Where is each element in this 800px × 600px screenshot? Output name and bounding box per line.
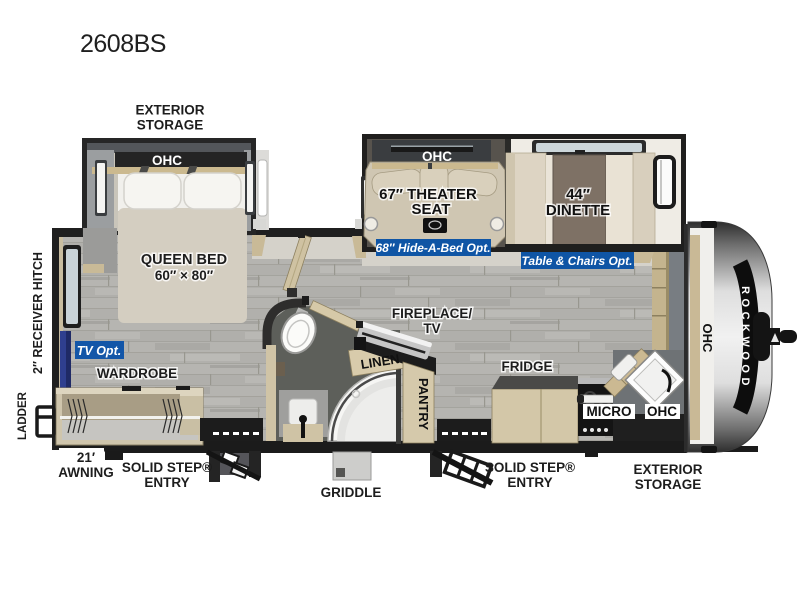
svg-text:ENTRY: ENTRY bbox=[507, 475, 552, 490]
svg-text:DINETTE: DINETTE bbox=[546, 202, 610, 219]
svg-text:EXTERIOR: EXTERIOR bbox=[135, 103, 204, 118]
svg-text:OHC: OHC bbox=[700, 324, 715, 354]
svg-text:60″ × 80″: 60″ × 80″ bbox=[155, 268, 214, 283]
svg-text:Table & Chairs Opt.: Table & Chairs Opt. bbox=[522, 254, 633, 268]
svg-text:2608BS: 2608BS bbox=[80, 30, 166, 58]
svg-text:EXTERIOR: EXTERIOR bbox=[633, 462, 702, 477]
svg-text:ROCKWOOD: ROCKWOOD bbox=[739, 286, 751, 390]
svg-text:TV: TV bbox=[423, 321, 440, 336]
svg-text:PANTRY: PANTRY bbox=[416, 378, 431, 430]
svg-text:68″ Hide-A-Bed Opt.: 68″ Hide-A-Bed Opt. bbox=[375, 241, 490, 255]
svg-text:AWNING: AWNING bbox=[58, 465, 114, 480]
svg-text:GRIDDLE: GRIDDLE bbox=[321, 485, 382, 500]
svg-text:21′: 21′ bbox=[77, 450, 95, 465]
svg-text:ENTRY: ENTRY bbox=[144, 475, 189, 490]
svg-text:OHC: OHC bbox=[152, 153, 182, 168]
svg-text:WARDROBE: WARDROBE bbox=[97, 366, 177, 381]
svg-text:2″ RECEIVER HITCH: 2″ RECEIVER HITCH bbox=[31, 252, 45, 374]
svg-text:STORAGE: STORAGE bbox=[635, 477, 702, 492]
svg-text:STORAGE: STORAGE bbox=[137, 118, 204, 133]
svg-text:FIREPLACE/: FIREPLACE/ bbox=[392, 306, 473, 321]
svg-text:44″: 44″ bbox=[566, 186, 590, 203]
svg-text:FRIDGE: FRIDGE bbox=[501, 359, 552, 374]
svg-text:SOLID STEP®: SOLID STEP® bbox=[122, 460, 212, 475]
svg-text:QUEEN BED: QUEEN BED bbox=[141, 252, 227, 268]
svg-text:LADDER: LADDER bbox=[17, 391, 29, 440]
svg-text:MICRO: MICRO bbox=[587, 404, 632, 419]
svg-text:TV Opt.: TV Opt. bbox=[77, 344, 121, 358]
svg-text:SOLID STEP®: SOLID STEP® bbox=[485, 460, 575, 475]
svg-text:OHC: OHC bbox=[647, 404, 677, 419]
svg-text:SEAT: SEAT bbox=[412, 201, 451, 218]
